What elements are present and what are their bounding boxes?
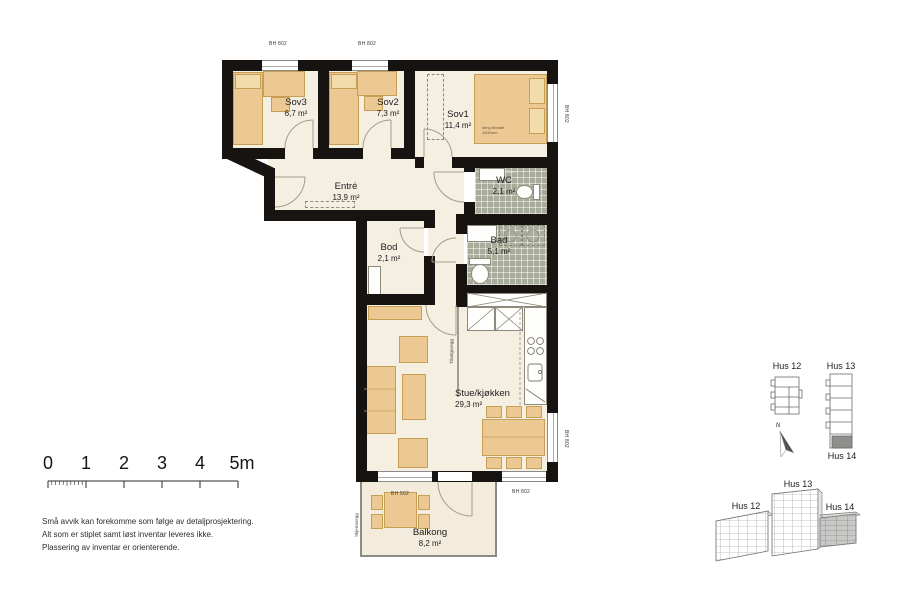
room-name: Balkong (400, 528, 460, 539)
scale-label: 0 (33, 453, 63, 474)
room-name: Sov1 (428, 110, 488, 121)
bh-label-balcony: BH 502 (380, 492, 420, 498)
optional-wall-note: Tilvalgsvegg (449, 322, 454, 382)
bh-label: BH 802 (562, 98, 568, 130)
room-label-entre: Entré 13,9 m² (316, 182, 376, 202)
room-area: 13,9 m² (316, 193, 376, 202)
bh-label: BH 802 (562, 423, 568, 455)
disclaimer-line: Små avvik kan forekomme som følge av det… (42, 515, 254, 528)
room-label-wc: WC 2,1 m² (479, 176, 529, 196)
room-area: 29,3 m² (455, 400, 545, 409)
siteplan-label-hus12: Hus 12 (757, 361, 817, 371)
room-name: Sov2 (358, 98, 418, 109)
floor-plan-page: Sov3 6,7 m² Sov2 7,3 m² Sov1 11,4 m² Ent… (0, 0, 900, 600)
iso-label-hus12: Hus 12 (716, 501, 776, 511)
room-name: Stue/kjøkken (455, 389, 545, 400)
room-name: Entré (316, 182, 376, 193)
room-label-sov1: Sov1 11,4 m² (428, 110, 488, 130)
room-label-stue: Stue/kjøkken 29,3 m² (455, 389, 545, 409)
disclaimer-line: Alt som er stiplet samt løst inventar le… (42, 528, 254, 541)
bh-label: BH 802 (258, 42, 298, 48)
iso-label-hus13: Hus 13 (768, 479, 828, 489)
room-label-balkong: Balkong 8,2 m² (400, 528, 460, 548)
room-label-bod: Bod 2,1 m² (364, 243, 414, 263)
disclaimer-line: Plassering av inventar er orienterende. (42, 541, 254, 554)
room-name: Bad (474, 236, 524, 247)
north-arrow (780, 431, 794, 457)
screen-wall-note: Skjermvegg (354, 502, 359, 548)
scale-label: 2 (109, 453, 139, 474)
room-area: 7,3 m² (358, 109, 418, 118)
scale-label: 1 (71, 453, 101, 474)
disclaimer-text: Små avvik kan forekomme som følge av det… (42, 515, 254, 554)
room-name: WC (479, 176, 529, 187)
room-area: 2,1 m² (364, 254, 414, 263)
bh-label: BH 802 (347, 42, 387, 48)
room-area: 6,7 m² (266, 109, 326, 118)
iso-label-hus14: Hus 14 (810, 502, 870, 512)
scale-label: 4 (185, 453, 215, 474)
bed-width-note: seng bredde 1600mm (482, 126, 522, 135)
room-label-bad: Bad 5,1 m² (474, 236, 524, 256)
room-label-sov2: Sov2 7,3 m² (358, 98, 418, 118)
bh-label: BH 802 (501, 490, 541, 496)
room-area: 8,2 m² (400, 539, 460, 548)
scale-label: 3 (147, 453, 177, 474)
wc-dimension-note: 50cm (500, 170, 520, 175)
north-label: N (772, 423, 784, 430)
room-name: Sov3 (266, 98, 326, 109)
room-area: 2,1 m² (479, 187, 529, 196)
bed-width-line2: 1600mm (482, 131, 522, 136)
room-label-sov3: Sov3 6,7 m² (266, 98, 326, 118)
scale-label: 5m (227, 453, 257, 474)
room-name: Bod (364, 243, 414, 254)
siteplan-label-hus14: Hus 14 (812, 451, 872, 461)
room-area: 11,4 m² (428, 121, 488, 130)
room-area: 5,1 m² (474, 247, 524, 256)
siteplan-label-hus13: Hus 13 (811, 361, 871, 371)
